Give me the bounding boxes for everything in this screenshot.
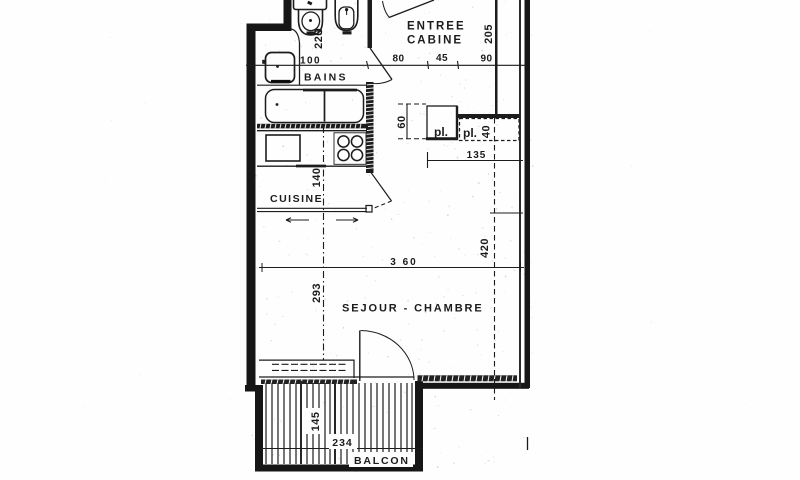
svg-text:100: 100 [300, 56, 321, 67]
svg-text:205: 205 [483, 24, 495, 44]
svg-text:140: 140 [311, 168, 323, 188]
svg-text:CABINE: CABINE [407, 35, 463, 47]
svg-text:BALCON: BALCON [354, 455, 410, 467]
svg-text:ENTREE: ENTREE [407, 21, 466, 33]
svg-text:90: 90 [480, 54, 492, 65]
svg-text:SEJOUR - CHAMBRE: SEJOUR - CHAMBRE [342, 303, 484, 315]
svg-text:pl.: pl. [463, 126, 477, 140]
svg-text:145: 145 [310, 412, 322, 432]
svg-text:BAINS: BAINS [304, 72, 348, 84]
svg-text:220: 220 [313, 29, 325, 49]
svg-text:3 60: 3 60 [390, 257, 417, 268]
svg-text:135: 135 [467, 150, 487, 161]
svg-text:45: 45 [436, 53, 448, 64]
svg-text:234: 234 [332, 437, 353, 449]
svg-text:420: 420 [479, 238, 491, 258]
svg-text:40: 40 [481, 125, 493, 138]
svg-text:60: 60 [396, 115, 408, 128]
svg-text:293: 293 [311, 283, 323, 303]
svg-text:pl.: pl. [434, 125, 448, 139]
svg-text:80: 80 [392, 54, 404, 65]
svg-text:CUISINE: CUISINE [270, 193, 323, 205]
